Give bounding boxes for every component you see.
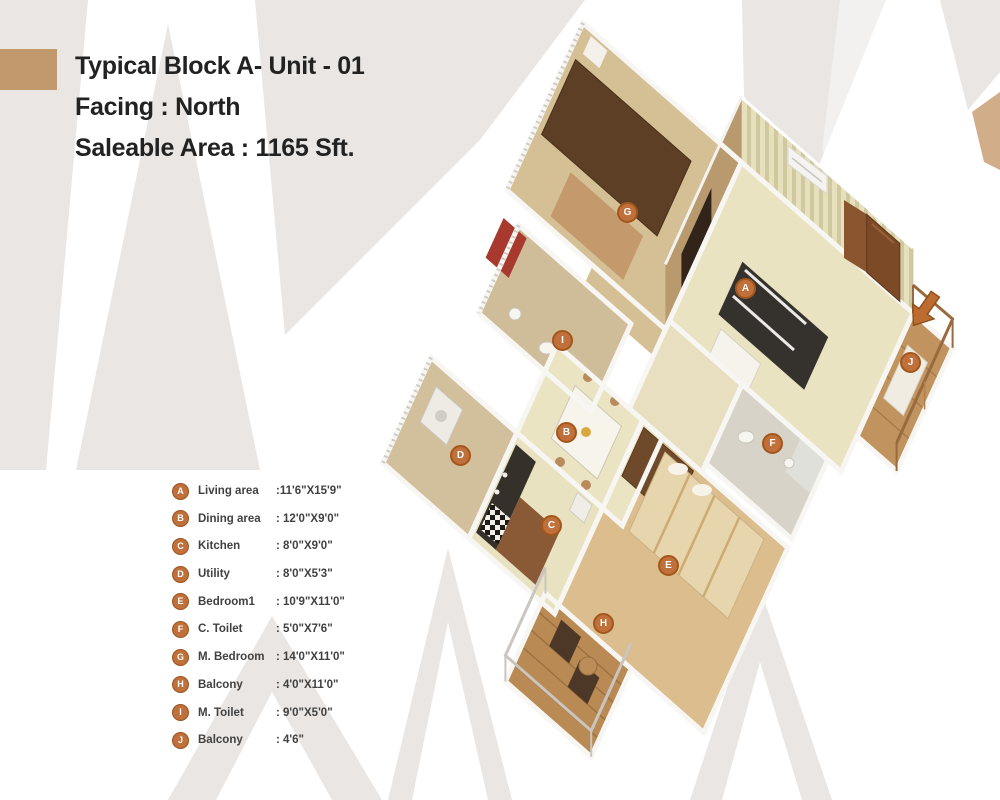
plan-label-balcony-j: J: [900, 352, 921, 373]
wash-basin: [509, 308, 521, 320]
plan-label-dining: B: [556, 422, 577, 443]
wash-basin: [784, 458, 794, 468]
floor-plan: [0, 0, 1000, 800]
plan-label-mbedroom: G: [617, 202, 638, 223]
plan-label-bedroom1: E: [658, 555, 679, 576]
plan-label-ctoilet: F: [762, 433, 783, 454]
plan-label-balcony-h: H: [593, 613, 614, 634]
plan-label-living: A: [735, 278, 756, 299]
plan-label-mtoilet: I: [552, 330, 573, 351]
plan-label-kitchen: C: [541, 515, 562, 536]
balcony-table: [579, 657, 597, 675]
toilet-bowl: [738, 431, 754, 443]
plan-label-utility: D: [450, 445, 471, 466]
